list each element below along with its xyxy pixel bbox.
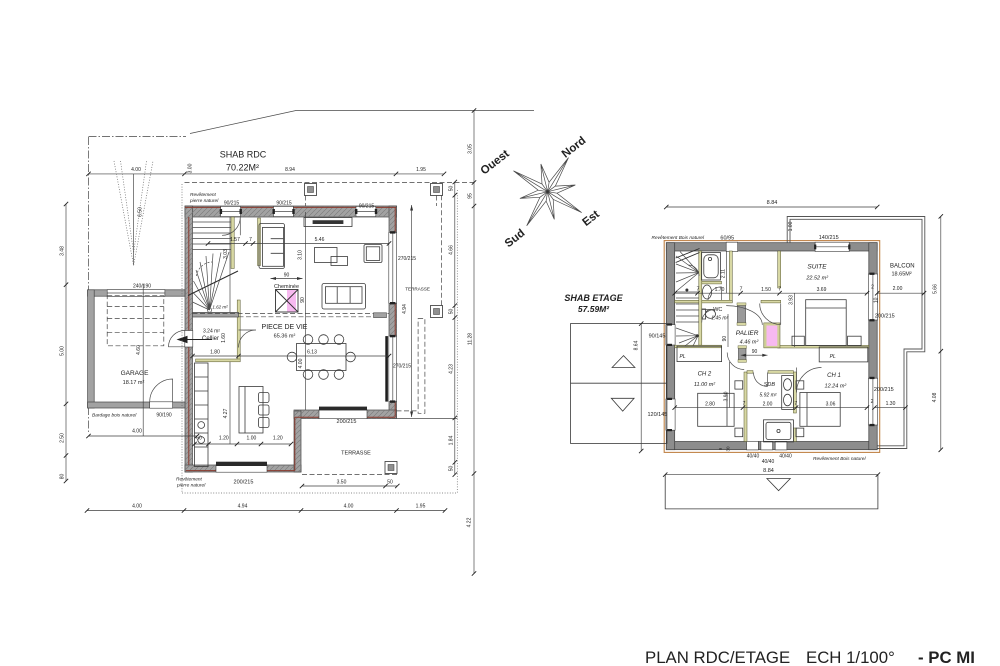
svg-text:2.00: 2.00 [763, 402, 773, 408]
svg-text:7: 7 [743, 401, 746, 407]
svg-text:6.50: 6.50 [138, 207, 144, 217]
svg-text:Cellier: Cellier [202, 336, 219, 342]
svg-text:1.62 m²: 1.62 m² [212, 305, 228, 310]
svg-text:PL: PL [680, 354, 686, 360]
svg-text:3.48: 3.48 [60, 246, 66, 256]
svg-text:Revêtement: Revêtement [190, 192, 217, 198]
svg-text:Cheminée: Cheminée [274, 284, 299, 290]
svg-text:140/215: 140/215 [819, 235, 839, 241]
svg-text:4.66: 4.66 [448, 245, 454, 255]
svg-text:90/215: 90/215 [359, 204, 375, 210]
svg-text:90: 90 [752, 349, 758, 355]
svg-text:3.24 m²: 3.24 m² [203, 329, 220, 335]
svg-text:7: 7 [697, 287, 700, 293]
svg-text:95: 95 [468, 193, 474, 199]
svg-text:60: 60 [196, 436, 202, 442]
svg-text:7: 7 [794, 401, 797, 407]
svg-text:Revêtement Bois naturel: Revêtement Bois naturel [652, 235, 705, 241]
svg-text:57.59M²: 57.59M² [578, 304, 610, 314]
svg-text:4.27: 4.27 [223, 408, 229, 418]
svg-text:40/40: 40/40 [779, 454, 792, 460]
svg-text:4.23: 4.23 [448, 364, 454, 374]
svg-text:5.00: 5.00 [60, 346, 66, 356]
svg-text:4.22: 4.22 [467, 517, 473, 527]
svg-text:4.46 m²: 4.46 m² [740, 340, 759, 346]
svg-text:SHAB ETAGE: SHAB ETAGE [564, 293, 623, 303]
svg-text:1.80: 1.80 [210, 350, 220, 356]
svg-text:1.20: 1.20 [273, 436, 283, 442]
svg-text:GARAGE: GARAGE [121, 370, 149, 377]
svg-text:TERRASSE: TERRASSE [341, 451, 371, 457]
svg-text:1.45 m²: 1.45 m² [711, 316, 728, 322]
svg-text:1.70: 1.70 [715, 287, 725, 293]
svg-text:12.24 m²: 12.24 m² [825, 384, 847, 390]
svg-text:40/40: 40/40 [762, 459, 775, 465]
svg-text:1.00: 1.00 [788, 221, 794, 231]
svg-text:4.00: 4.00 [298, 358, 304, 368]
svg-text:PALIER: PALIER [736, 330, 759, 337]
svg-text:CH 1: CH 1 [827, 373, 841, 379]
svg-text:80: 80 [60, 474, 66, 480]
svg-text:4.00: 4.00 [132, 429, 142, 435]
svg-text:4.94: 4.94 [402, 304, 408, 314]
svg-text:90: 90 [722, 336, 728, 342]
svg-text:22.52 m²: 22.52 m² [805, 275, 828, 281]
svg-text:4.00: 4.00 [132, 504, 142, 510]
svg-text:200/215: 200/215 [234, 480, 254, 486]
svg-text:5.92 m²: 5.92 m² [760, 392, 777, 398]
svg-text:90/215: 90/215 [224, 201, 240, 207]
svg-text:1.84: 1.84 [448, 435, 454, 445]
svg-text:1.30: 1.30 [886, 401, 896, 407]
svg-text:200/215: 200/215 [874, 387, 894, 393]
svg-text:3.50: 3.50 [337, 480, 347, 486]
svg-text:7: 7 [249, 237, 252, 243]
svg-text:60/95: 60/95 [720, 236, 734, 242]
svg-text:120/145: 120/145 [647, 412, 667, 418]
svg-text:SUITE: SUITE [807, 264, 827, 271]
svg-text:11.00 m²: 11.00 m² [694, 382, 715, 388]
svg-text:3.03: 3.03 [223, 249, 229, 259]
svg-text:4.08: 4.08 [932, 392, 938, 402]
svg-text:PLAN RDC/ETAGEECH 1/100°- PC M: PLAN RDC/ETAGEECH 1/100°- PC MI [645, 648, 975, 666]
svg-text:SDB: SDB [764, 382, 776, 388]
svg-text:10: 10 [874, 297, 880, 303]
svg-text:200/215: 200/215 [875, 313, 895, 319]
svg-text:4.60: 4.60 [136, 345, 142, 355]
svg-text:3.69: 3.69 [817, 287, 827, 293]
svg-text:5.66: 5.66 [932, 284, 938, 294]
svg-text:1.95: 1.95 [416, 167, 426, 173]
svg-text:2.00: 2.00 [893, 286, 903, 292]
svg-text:pierre naturel: pierre naturel [176, 483, 206, 489]
svg-text:PIECE DE VIE: PIECE DE VIE [262, 324, 308, 331]
svg-text:SHAB RDC: SHAB RDC [220, 150, 267, 160]
svg-text:90: 90 [300, 297, 306, 303]
svg-text:11.28: 11.28 [468, 333, 474, 345]
svg-text:90/145: 90/145 [649, 333, 666, 339]
svg-text:1.60: 1.60 [221, 333, 227, 343]
svg-text:2.80: 2.80 [705, 402, 715, 408]
svg-text:90: 90 [284, 273, 290, 279]
svg-text:50: 50 [448, 466, 454, 472]
svg-text:18.17 m²: 18.17 m² [123, 380, 145, 386]
svg-text:7: 7 [740, 287, 743, 293]
svg-text:50: 50 [387, 480, 393, 486]
svg-text:1.95: 1.95 [416, 504, 426, 510]
svg-text:70.22M²: 70.22M² [226, 163, 259, 173]
svg-text:270/215: 270/215 [398, 256, 416, 262]
svg-text:200/215: 200/215 [337, 419, 357, 425]
svg-text:3.00: 3.00 [188, 163, 194, 173]
svg-text:8.84: 8.84 [763, 468, 774, 474]
svg-text:Revêtement: Revêtement [176, 477, 203, 483]
svg-text:8.64: 8.64 [633, 340, 639, 350]
svg-text:50: 50 [448, 186, 454, 192]
svg-text:2: 2 [871, 399, 874, 405]
svg-text:2: 2 [871, 285, 874, 291]
svg-text:7: 7 [778, 287, 781, 293]
svg-text:50: 50 [448, 309, 454, 315]
svg-text:WC: WC [713, 307, 722, 313]
svg-text:3.10: 3.10 [298, 250, 304, 260]
svg-text:1.50: 1.50 [761, 287, 771, 293]
svg-text:90/190: 90/190 [156, 413, 172, 419]
svg-text:5.46: 5.46 [315, 237, 325, 243]
svg-text:Bardage bois naturel: Bardage bois naturel [92, 413, 137, 419]
svg-text:2.11: 2.11 [721, 269, 727, 279]
svg-text:8.84: 8.84 [767, 200, 778, 206]
svg-text:CH 2: CH 2 [698, 372, 712, 378]
svg-text:4.00: 4.00 [344, 504, 354, 510]
svg-text:2.50: 2.50 [60, 433, 66, 443]
svg-text:240/190: 240/190 [133, 284, 151, 290]
svg-text:8.94: 8.94 [285, 167, 295, 173]
svg-text:3.05: 3.05 [468, 144, 474, 154]
svg-text:65.36 m²: 65.36 m² [274, 334, 296, 340]
svg-text:90/215: 90/215 [276, 201, 292, 207]
svg-text:40/40: 40/40 [747, 454, 760, 460]
svg-text:3.93: 3.93 [789, 295, 795, 305]
svg-text:pierre naturel: pierre naturel [189, 198, 219, 204]
svg-text:4.00: 4.00 [131, 167, 141, 173]
svg-text:6.13: 6.13 [307, 350, 317, 356]
svg-text:TERRASSE: TERRASSE [405, 287, 430, 292]
svg-text:1.00: 1.00 [247, 436, 257, 442]
svg-text:18.65M²: 18.65M² [892, 272, 912, 278]
svg-text:Revêtement Bois naturel: Revêtement Bois naturel [813, 456, 866, 462]
svg-text:3.90: 3.90 [724, 391, 730, 401]
svg-text:30: 30 [726, 446, 731, 452]
svg-text:BALCON: BALCON [890, 264, 915, 270]
svg-text:PL: PL [830, 354, 836, 360]
svg-text:4.94: 4.94 [238, 504, 248, 510]
svg-text:1.20: 1.20 [219, 436, 229, 442]
svg-text:270/215: 270/215 [393, 364, 411, 370]
svg-text:1.57: 1.57 [230, 237, 240, 243]
svg-text:3.06: 3.06 [826, 402, 836, 408]
